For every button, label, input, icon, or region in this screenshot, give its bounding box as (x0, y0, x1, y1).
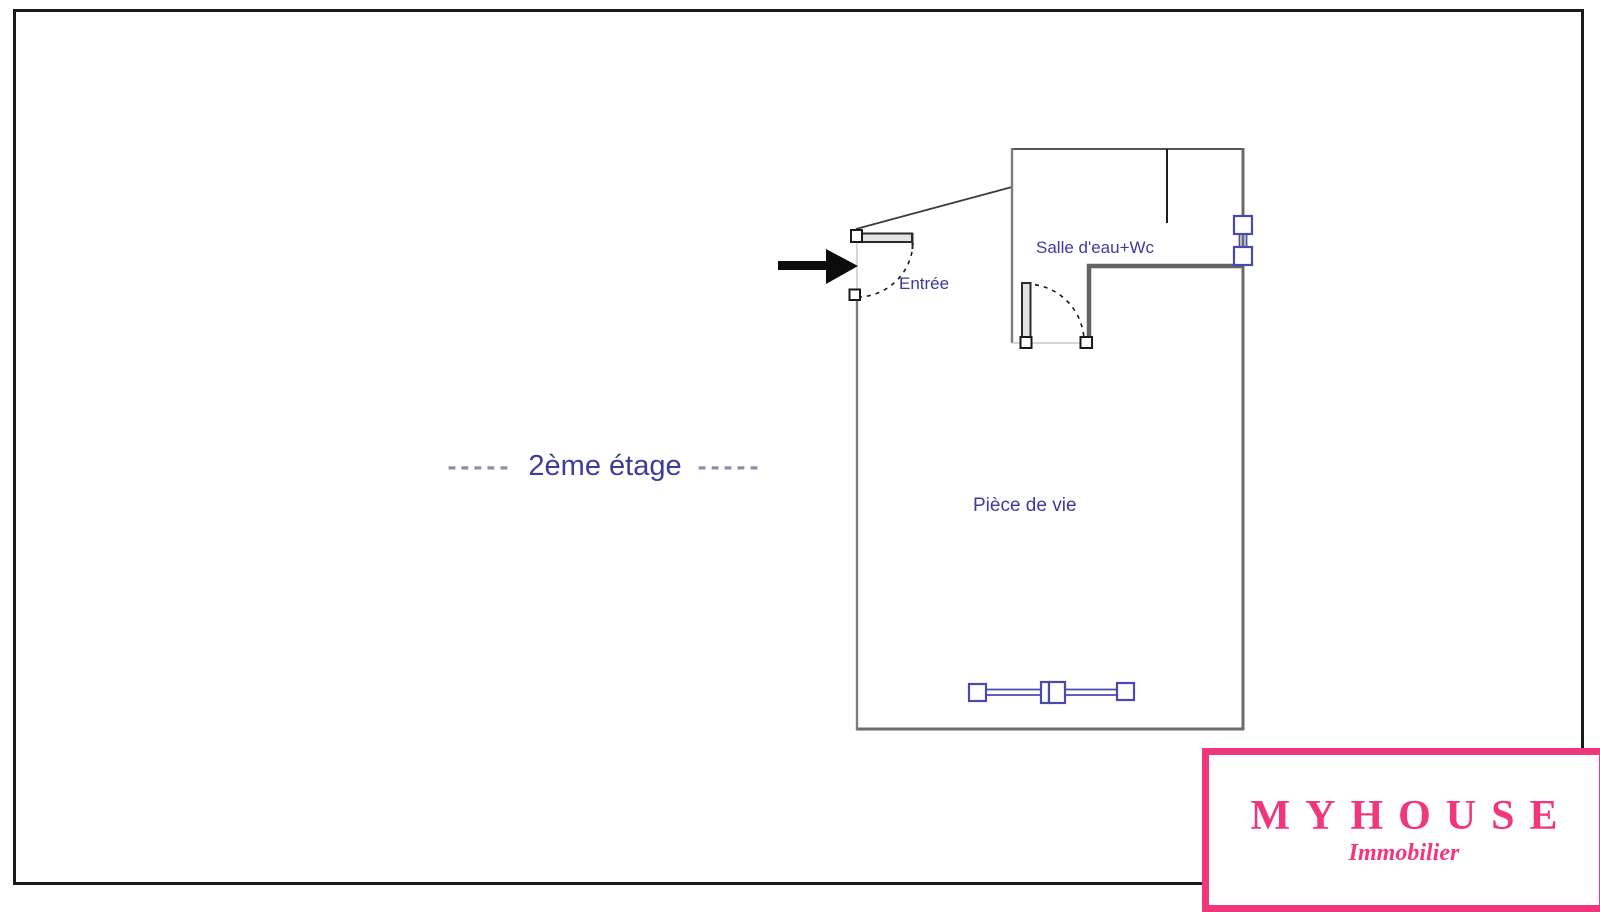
bathroom-door-swing-arc (1026, 284, 1084, 342)
agency-logo: MYHOUSE Immobilier (1202, 748, 1600, 912)
bathroom-door-leaf (1022, 283, 1031, 337)
room-label-entree: Entrée (899, 274, 949, 294)
entry-door-hinge (851, 230, 862, 242)
bathroom-door-strike (1081, 337, 1093, 348)
entry-door-strike (850, 290, 861, 301)
window-icon-bottom (969, 682, 1134, 703)
floor-title-dashes-right: ----- (698, 451, 763, 482)
bathroom-door (1021, 283, 1093, 348)
agency-logo-name: MYHOUSE (1235, 795, 1572, 837)
walls (856, 148, 1244, 730)
room-label-salle-deau-wc: Salle d'eau+Wc (1036, 238, 1154, 258)
floor-plan-page: { "document": { "type": "real-estate flo… (0, 0, 1600, 908)
floor-title: ----- 2ème étage ----- (430, 450, 780, 483)
entry-arrow-icon (778, 249, 858, 284)
floor-title-text: 2ème étage (528, 450, 681, 483)
floor-title-dashes-left: ----- (447, 451, 512, 482)
bathroom-door-hinge (1021, 337, 1032, 348)
entry-door-leaf (862, 234, 912, 243)
agency-logo-tagline: Immobilier (1349, 841, 1460, 865)
room-label-piece-de-vie: Pièce de vie (973, 495, 1077, 517)
